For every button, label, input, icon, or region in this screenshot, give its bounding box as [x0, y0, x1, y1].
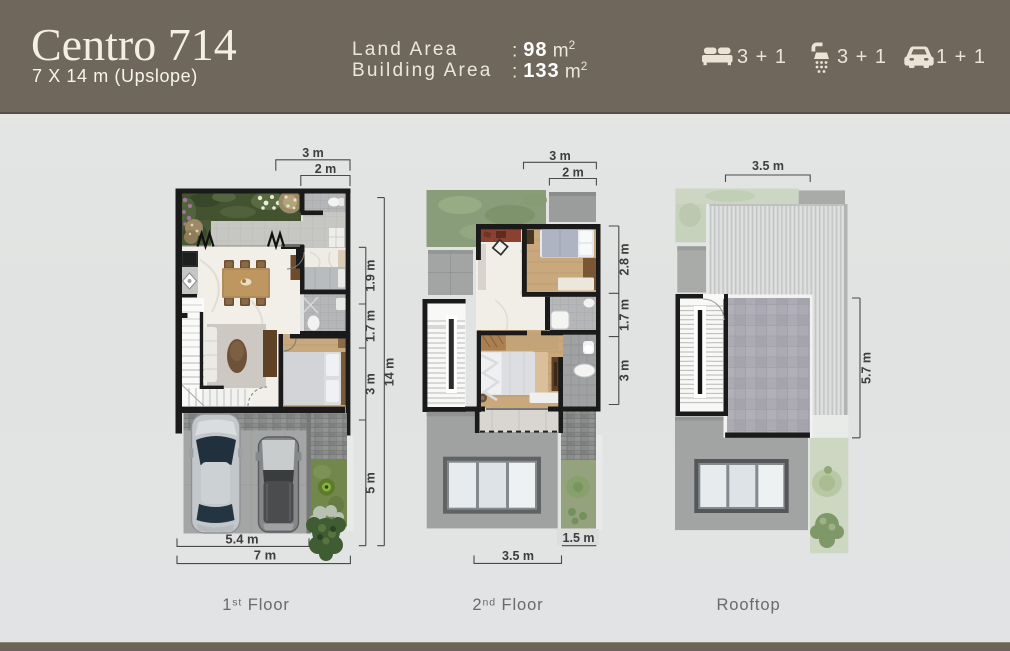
svg-text:1.9 m: 1.9 m	[364, 260, 378, 292]
svg-text:2.8 m: 2.8 m	[618, 244, 632, 276]
svg-text:2nd Floor: 2nd Floor	[472, 596, 543, 614]
svg-text:Rooftop: Rooftop	[716, 596, 780, 614]
svg-text:3 m: 3 m	[364, 373, 378, 395]
svg-text:5 m: 5 m	[364, 472, 378, 494]
svg-text:1.7 m: 1.7 m	[364, 310, 378, 342]
svg-text:2 m: 2 m	[315, 162, 337, 176]
svg-text:7 m: 7 m	[254, 548, 276, 563]
svg-text:1.5 m: 1.5 m	[563, 531, 595, 545]
svg-text:1st Floor: 1st Floor	[222, 596, 290, 614]
svg-text:2 m: 2 m	[562, 166, 584, 180]
svg-text:3 m: 3 m	[302, 146, 324, 160]
svg-text:3.5 m: 3.5 m	[502, 549, 534, 563]
svg-text:5.4 m: 5.4 m	[225, 532, 258, 547]
svg-text:1.7 m: 1.7 m	[618, 299, 632, 331]
svg-text:3 m: 3 m	[618, 360, 632, 382]
svg-text:14 m: 14 m	[383, 358, 397, 387]
svg-text:3 m: 3 m	[549, 149, 571, 163]
svg-text:5.7 m: 5.7 m	[860, 352, 874, 384]
svg-text:3.5 m: 3.5 m	[752, 159, 784, 173]
